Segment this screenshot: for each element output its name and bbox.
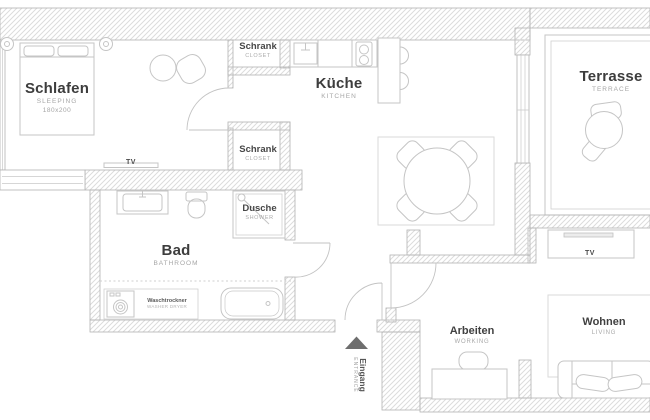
kitchen-island: [378, 38, 400, 103]
dining-table: [404, 148, 470, 214]
door-arc-bathroom: [293, 243, 330, 277]
pillow: [24, 46, 54, 56]
wall: [382, 332, 420, 410]
wall: [90, 190, 100, 320]
wall: [285, 190, 295, 240]
wall: [530, 8, 650, 28]
bathtub-inner: [225, 291, 279, 316]
washer-control: [116, 293, 120, 296]
wall: [285, 277, 295, 320]
wall: [390, 255, 530, 263]
door-arc-entrance: [345, 283, 382, 320]
terrace-table: [586, 112, 623, 149]
bar-stool: [400, 47, 409, 64]
kitchen-fixtures: [290, 38, 409, 103]
wall: [228, 128, 233, 170]
wall-stub: [386, 308, 396, 322]
wall: [420, 398, 650, 412]
washer-door-icon: [119, 305, 123, 309]
window: [517, 55, 529, 163]
wall: [90, 320, 335, 332]
wall: [530, 215, 650, 228]
washer-door-icon: [116, 303, 125, 312]
toilet-bowl: [188, 199, 205, 218]
wall: [228, 122, 290, 130]
ceiling-lamp-icon: [1, 38, 14, 51]
pillow: [58, 46, 88, 56]
tv-living: [564, 233, 613, 237]
wall: [0, 8, 530, 40]
terrace-furniture: [580, 101, 623, 164]
washer-control: [110, 293, 114, 296]
wall: [407, 230, 420, 255]
wall: [515, 163, 530, 255]
desk: [432, 369, 507, 399]
wall: [280, 40, 290, 68]
window: [0, 170, 85, 190]
wall-pillar: [519, 360, 531, 398]
dining-set: [394, 138, 480, 224]
shower-diagonal: [241, 197, 269, 224]
floorplan-canvas: [0, 0, 650, 420]
bathtub-drain: [266, 302, 270, 306]
wall: [515, 28, 530, 55]
lounge-chair: [150, 55, 176, 81]
entrance-arrow-icon: [345, 337, 368, 350]
lounge-chair: [173, 51, 209, 87]
door-arc-bedroom: [187, 88, 229, 130]
wall: [228, 40, 233, 88]
floor-plan: Schlafen SLEEPING 180x200 TV Schrank CLO…: [0, 0, 650, 420]
ceiling-lamp-icon: [100, 38, 113, 51]
door-arc-hall: [391, 263, 436, 308]
wall: [85, 170, 302, 190]
desk-chair: [459, 352, 488, 370]
walls: [0, 8, 650, 412]
bathroom-fixtures: [100, 191, 295, 319]
shower-head-icon: [238, 194, 245, 201]
bedroom-furniture: [1, 38, 209, 168]
wall: [377, 320, 420, 332]
bar-stool: [400, 73, 409, 90]
bathtub: [221, 288, 283, 319]
wall: [228, 67, 290, 75]
tv-bedroom: [104, 163, 158, 168]
toilet-tank: [186, 192, 207, 201]
